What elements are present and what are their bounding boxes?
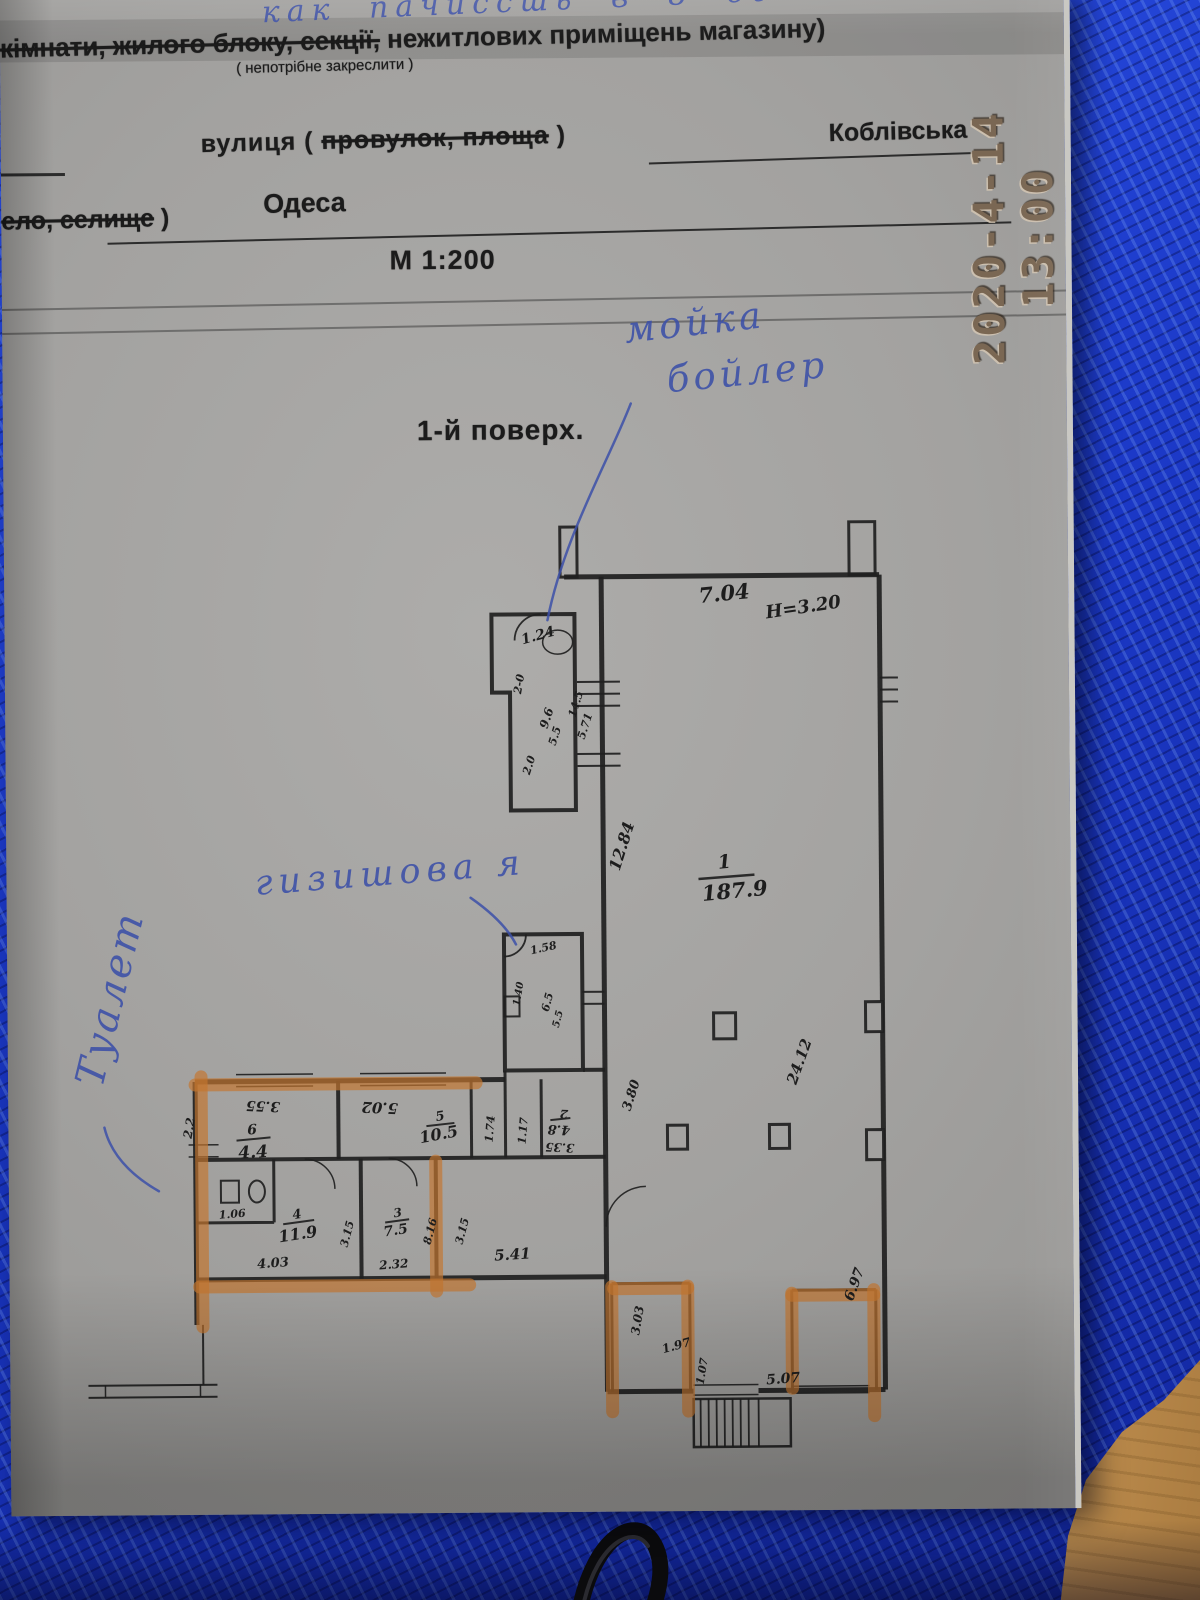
plan-dim: 2.0 [520, 754, 539, 777]
room-number: 6 [247, 1122, 258, 1139]
plan-dim: 1.17 [516, 1117, 531, 1145]
cable [540, 1498, 710, 1600]
plan-dim: 3.55 [246, 1097, 281, 1115]
plan-dim: 7.04 [697, 578, 750, 608]
plan-dim: 1.07 [694, 1357, 711, 1386]
plan-dim: 1.40 [512, 981, 527, 1007]
document-page: как пачиссшь в 8 ог кімнати, жилого блок… [0, 0, 1081, 1516]
plan-dim: 12.84 [605, 819, 638, 873]
plan-dim: 3.15 [338, 1219, 357, 1248]
room-area: 10.5 [418, 1121, 460, 1147]
room-area: 7.5 [383, 1221, 409, 1240]
photo-scene: как пачиссшь в 8 ог кімнати, жилого блок… [0, 0, 1200, 1600]
room-number: 4 [292, 1207, 303, 1223]
plan-dim: 5.5 [551, 1009, 566, 1029]
plan-dim: 3.80 [620, 1078, 644, 1113]
plan-dim: 1.74 [483, 1115, 498, 1143]
plan-dim: 6.5 [539, 991, 556, 1013]
room-area: 11.9 [277, 1222, 318, 1247]
plan-dim: 2.32 [378, 1256, 409, 1272]
room-number: 5 [434, 1109, 446, 1125]
room-number: 3 [393, 1205, 403, 1220]
plan-dim: 1.24 [519, 624, 556, 649]
room-number: 1 [717, 851, 732, 874]
camera-timestamp: 2020-4-14 13:00 [963, 37, 1064, 438]
room-number: 2 [559, 1107, 569, 1121]
floor-plan: 7.04 Н=3.20 1.24 2-0 14.5 5.71 9.6 5.5 2… [0, 0, 1075, 1516]
plan-dim: 1.58 [529, 939, 558, 958]
plan-dim: 2-0 [511, 673, 527, 696]
plan-dim: 4.03 [257, 1255, 290, 1272]
plan-dim: 5.02 [361, 1098, 398, 1118]
plan-dim: 24.12 [783, 1036, 816, 1087]
plan-dim: 5.07 [766, 1370, 801, 1389]
plan-dim: 3.15 [453, 1216, 472, 1245]
room-area: 4.4 [238, 1142, 269, 1164]
room-area: 4.8 [547, 1121, 570, 1137]
plan-dim: 3.35 [545, 1140, 575, 1155]
room-area: 187.9 [701, 875, 769, 906]
plan-dim: Н=3.20 [763, 591, 843, 623]
plan-dim: 3.03 [628, 1305, 647, 1336]
plan-dim: 1.06 [218, 1207, 246, 1222]
plan-dimension-labels: 7.04 Н=3.20 1.24 2-0 14.5 5.71 9.6 5.5 2… [176, 577, 869, 1393]
plan-dim: 5.41 [494, 1244, 532, 1264]
